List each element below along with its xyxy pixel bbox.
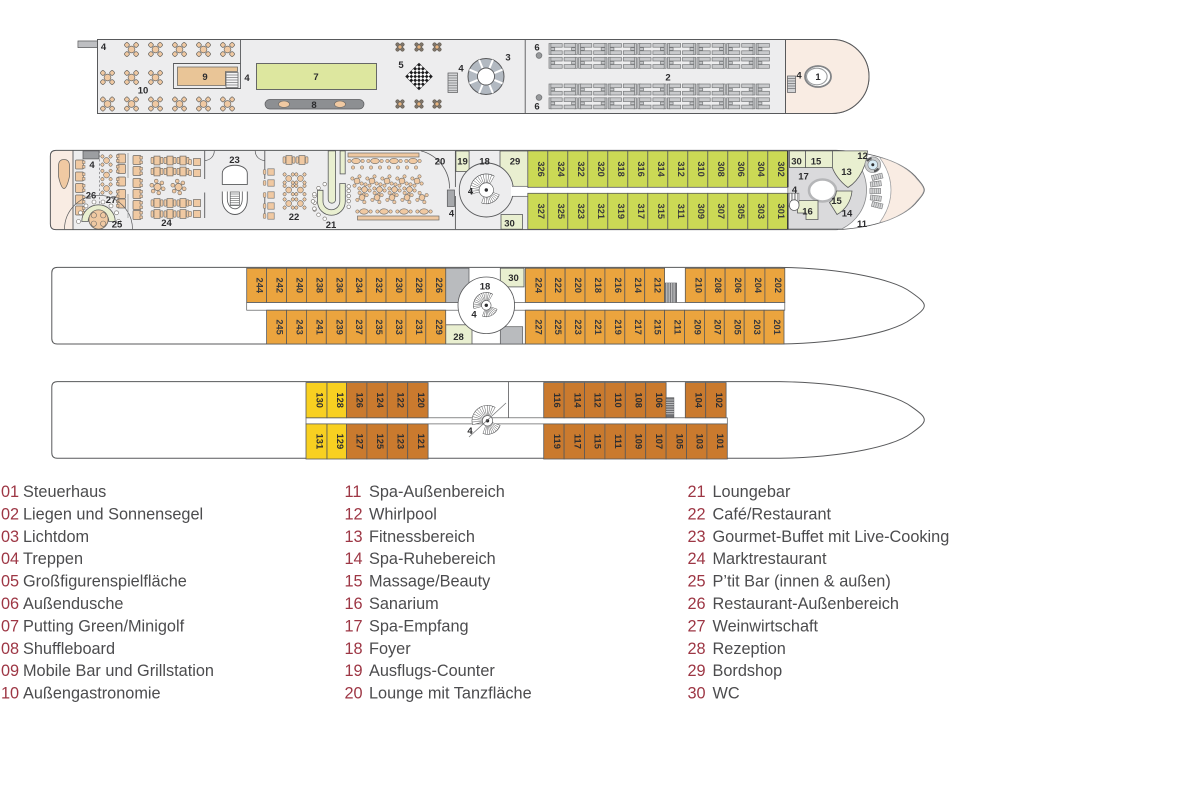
svg-text:4: 4 <box>467 426 473 437</box>
svg-text:125: 125 <box>375 434 385 450</box>
svg-text:29: 29 <box>688 662 706 680</box>
svg-text:320: 320 <box>596 161 606 177</box>
svg-text:206: 206 <box>733 278 743 294</box>
svg-text:217: 217 <box>633 319 643 335</box>
svg-text:30: 30 <box>508 273 519 284</box>
svg-text:218: 218 <box>593 278 603 294</box>
svg-text:326: 326 <box>536 161 546 177</box>
svg-text:301: 301 <box>776 204 786 220</box>
svg-text:Sanarium: Sanarium <box>369 595 439 613</box>
svg-text:07: 07 <box>1 617 19 635</box>
svg-text:Loungebar: Loungebar <box>713 483 791 501</box>
svg-text:21: 21 <box>688 483 706 501</box>
svg-text:214: 214 <box>633 278 643 294</box>
svg-text:2: 2 <box>665 73 670 84</box>
svg-text:01: 01 <box>1 483 19 501</box>
svg-text:4: 4 <box>89 160 95 171</box>
svg-text:12: 12 <box>345 505 363 523</box>
svg-text:204: 204 <box>753 278 763 294</box>
svg-text:239: 239 <box>334 319 344 335</box>
svg-text:23: 23 <box>229 155 240 166</box>
svg-text:06: 06 <box>1 595 19 613</box>
svg-text:238: 238 <box>314 278 324 294</box>
svg-text:Gourmet-Buffet mit Live-Cookin: Gourmet-Buffet mit Live-Cooking <box>713 528 950 546</box>
svg-text:103: 103 <box>695 434 705 450</box>
svg-text:321: 321 <box>596 204 606 220</box>
svg-text:211: 211 <box>673 320 683 335</box>
svg-text:5: 5 <box>398 60 404 71</box>
svg-text:119: 119 <box>552 434 562 449</box>
svg-text:19: 19 <box>345 662 363 680</box>
svg-text:12: 12 <box>857 151 868 162</box>
svg-text:Spa-Außenbereich: Spa-Außenbereich <box>369 483 505 501</box>
svg-text:29: 29 <box>510 157 521 168</box>
svg-text:Rezeption: Rezeption <box>713 640 786 658</box>
svg-text:225: 225 <box>553 319 563 335</box>
svg-text:208: 208 <box>713 278 723 294</box>
svg-text:108: 108 <box>634 392 644 408</box>
svg-text:Bordshop: Bordshop <box>713 662 783 680</box>
svg-text:226: 226 <box>434 278 444 294</box>
svg-text:232: 232 <box>374 278 384 294</box>
svg-text:244: 244 <box>255 278 265 294</box>
svg-text:25: 25 <box>688 573 706 591</box>
svg-text:324: 324 <box>556 161 566 177</box>
svg-text:308: 308 <box>716 161 726 177</box>
svg-text:304: 304 <box>756 161 766 177</box>
svg-text:16: 16 <box>345 595 363 613</box>
svg-text:314: 314 <box>656 161 666 177</box>
svg-text:307: 307 <box>716 204 726 220</box>
svg-text:230: 230 <box>394 278 404 294</box>
svg-text:30: 30 <box>504 219 515 230</box>
svg-text:Spa-Ruhebereich: Spa-Ruhebereich <box>369 550 496 568</box>
svg-text:130: 130 <box>315 392 325 408</box>
svg-text:4: 4 <box>101 42 107 53</box>
svg-text:126: 126 <box>355 392 365 408</box>
svg-text:115: 115 <box>593 434 603 449</box>
svg-text:229: 229 <box>434 319 444 335</box>
svg-text:WC: WC <box>713 685 740 703</box>
svg-text:4: 4 <box>471 310 477 321</box>
svg-text:128: 128 <box>335 392 345 408</box>
svg-text:224: 224 <box>533 278 543 294</box>
svg-text:10: 10 <box>1 685 19 703</box>
svg-text:228: 228 <box>414 278 424 294</box>
svg-text:227: 227 <box>533 319 543 335</box>
svg-text:10: 10 <box>138 86 149 97</box>
svg-text:124: 124 <box>375 392 385 408</box>
svg-text:309: 309 <box>696 204 706 220</box>
svg-text:22: 22 <box>289 212 300 223</box>
svg-text:319: 319 <box>616 204 626 220</box>
svg-text:302: 302 <box>776 161 786 177</box>
svg-text:02: 02 <box>1 505 19 523</box>
svg-text:Restaurant-Außenbereich: Restaurant-Außenbereich <box>713 595 899 613</box>
svg-text:234: 234 <box>354 278 364 294</box>
svg-text:203: 203 <box>752 319 762 335</box>
svg-text:325: 325 <box>556 204 566 220</box>
svg-text:318: 318 <box>616 161 626 177</box>
svg-text:1: 1 <box>815 72 821 83</box>
svg-text:Café/Restaurant: Café/Restaurant <box>713 505 832 523</box>
svg-text:233: 233 <box>394 319 404 335</box>
svg-text:Außengastronomie: Außengastronomie <box>23 685 161 703</box>
svg-text:Fitnessbereich: Fitnessbereich <box>369 528 475 546</box>
svg-text:18: 18 <box>345 640 363 658</box>
svg-text:9: 9 <box>202 72 207 83</box>
svg-text:212: 212 <box>653 278 663 294</box>
svg-text:236: 236 <box>334 278 344 294</box>
svg-text:30: 30 <box>688 685 706 703</box>
svg-text:Liegen und Sonnensegel: Liegen und Sonnensegel <box>23 505 203 523</box>
svg-text:7: 7 <box>313 72 318 83</box>
svg-text:Treppen: Treppen <box>23 550 83 568</box>
svg-text:Ausflugs-Counter: Ausflugs-Counter <box>369 662 495 680</box>
svg-text:4: 4 <box>792 185 798 196</box>
svg-text:4: 4 <box>796 71 802 82</box>
svg-text:207: 207 <box>712 319 722 335</box>
svg-text:24: 24 <box>161 218 172 229</box>
svg-text:4: 4 <box>468 187 474 198</box>
svg-text:Putting Green/Minigolf: Putting Green/Minigolf <box>23 617 185 635</box>
svg-text:114: 114 <box>572 393 582 409</box>
svg-text:107: 107 <box>654 434 664 450</box>
svg-text:311: 311 <box>676 204 686 219</box>
svg-text:26: 26 <box>688 595 706 613</box>
svg-text:6: 6 <box>534 43 539 54</box>
svg-text:Lichtdom: Lichtdom <box>23 528 89 546</box>
svg-text:09: 09 <box>1 662 19 680</box>
svg-text:242: 242 <box>275 278 285 294</box>
svg-text:18: 18 <box>480 282 491 293</box>
svg-text:28: 28 <box>688 640 706 658</box>
svg-text:11: 11 <box>345 483 362 501</box>
svg-text:P’tit Bar (innen & außen): P’tit Bar (innen & außen) <box>713 573 891 591</box>
svg-text:110: 110 <box>613 393 623 408</box>
svg-text:109: 109 <box>634 434 644 450</box>
svg-text:04: 04 <box>1 550 19 568</box>
svg-text:13: 13 <box>345 528 363 546</box>
svg-text:17: 17 <box>798 172 809 183</box>
svg-text:102: 102 <box>714 392 724 408</box>
svg-text:116: 116 <box>552 393 562 408</box>
svg-text:231: 231 <box>414 319 424 335</box>
svg-text:Foyer: Foyer <box>369 640 411 658</box>
svg-text:112: 112 <box>593 393 603 408</box>
svg-text:327: 327 <box>536 204 546 220</box>
svg-text:Spa-Empfang: Spa-Empfang <box>369 617 469 635</box>
svg-text:106: 106 <box>654 392 664 408</box>
svg-text:235: 235 <box>374 319 384 335</box>
svg-text:Lounge mit Tanzfläche: Lounge mit Tanzfläche <box>369 685 532 703</box>
svg-text:8: 8 <box>311 100 316 111</box>
svg-text:317: 317 <box>636 204 646 220</box>
svg-text:14: 14 <box>842 209 853 220</box>
svg-text:120: 120 <box>416 392 426 408</box>
svg-text:3: 3 <box>505 53 510 64</box>
svg-text:127: 127 <box>355 434 365 450</box>
svg-text:05: 05 <box>1 573 19 591</box>
svg-text:310: 310 <box>696 161 706 177</box>
svg-text:19: 19 <box>457 157 468 168</box>
svg-text:11: 11 <box>857 219 868 230</box>
svg-text:16: 16 <box>802 207 813 218</box>
svg-text:129: 129 <box>335 434 345 450</box>
svg-text:14: 14 <box>345 550 363 568</box>
svg-text:202: 202 <box>773 278 783 294</box>
svg-text:219: 219 <box>613 319 623 335</box>
svg-text:312: 312 <box>676 161 686 177</box>
svg-text:30: 30 <box>791 157 802 168</box>
svg-text:117: 117 <box>572 434 582 449</box>
svg-text:4: 4 <box>244 73 250 84</box>
svg-text:4: 4 <box>449 209 455 220</box>
svg-text:306: 306 <box>736 161 746 177</box>
svg-text:6: 6 <box>534 102 539 113</box>
svg-text:15: 15 <box>345 573 363 591</box>
svg-text:240: 240 <box>294 278 304 294</box>
svg-text:111: 111 <box>613 434 623 449</box>
svg-text:122: 122 <box>396 392 406 408</box>
svg-text:322: 322 <box>576 161 586 177</box>
svg-text:20: 20 <box>345 685 363 703</box>
svg-text:Großfigurenspielfläche: Großfigurenspielfläche <box>23 573 187 591</box>
svg-text:08: 08 <box>1 640 19 658</box>
svg-text:209: 209 <box>692 319 702 335</box>
svg-text:237: 237 <box>354 319 364 335</box>
svg-text:315: 315 <box>656 204 666 220</box>
svg-text:223: 223 <box>573 319 583 335</box>
svg-text:24: 24 <box>688 550 706 568</box>
svg-text:03: 03 <box>1 528 19 546</box>
svg-text:101: 101 <box>715 434 725 450</box>
svg-text:15: 15 <box>831 196 842 207</box>
svg-text:241: 241 <box>314 319 324 335</box>
svg-text:20: 20 <box>435 157 446 168</box>
svg-text:Shuffleboard: Shuffleboard <box>23 640 115 658</box>
svg-text:25: 25 <box>112 220 123 231</box>
svg-text:123: 123 <box>396 434 406 450</box>
svg-text:28: 28 <box>453 332 464 343</box>
svg-text:221: 221 <box>593 319 603 335</box>
svg-text:201: 201 <box>772 319 782 335</box>
svg-text:13: 13 <box>841 167 852 178</box>
svg-text:220: 220 <box>573 278 583 294</box>
svg-text:Whirlpool: Whirlpool <box>369 505 437 523</box>
svg-text:15: 15 <box>811 157 822 168</box>
svg-text:Mobile Bar und Grillstation: Mobile Bar und Grillstation <box>23 662 214 680</box>
svg-text:22: 22 <box>688 505 706 523</box>
svg-text:303: 303 <box>756 204 766 220</box>
svg-text:104: 104 <box>694 392 704 408</box>
svg-text:21: 21 <box>326 220 337 231</box>
svg-text:Außendusche: Außendusche <box>23 595 123 613</box>
svg-text:Marktrestaurant: Marktrestaurant <box>713 550 827 568</box>
svg-text:323: 323 <box>576 204 586 220</box>
svg-text:131: 131 <box>315 434 325 450</box>
svg-text:4: 4 <box>458 64 464 75</box>
svg-text:216: 216 <box>613 278 623 294</box>
svg-text:243: 243 <box>294 319 304 335</box>
svg-text:305: 305 <box>736 204 746 220</box>
svg-text:Steuerhaus: Steuerhaus <box>23 483 106 501</box>
svg-text:23: 23 <box>688 528 706 546</box>
svg-text:18: 18 <box>479 157 490 168</box>
svg-text:222: 222 <box>553 278 563 294</box>
svg-text:105: 105 <box>674 434 684 450</box>
svg-text:245: 245 <box>275 319 285 335</box>
svg-text:Massage/Beauty: Massage/Beauty <box>369 573 491 591</box>
svg-text:27: 27 <box>688 617 706 635</box>
svg-text:121: 121 <box>416 434 426 450</box>
svg-text:210: 210 <box>693 278 703 294</box>
svg-text:17: 17 <box>345 617 363 635</box>
svg-text:215: 215 <box>653 319 663 335</box>
svg-text:205: 205 <box>732 319 742 335</box>
svg-text:316: 316 <box>636 161 646 177</box>
svg-text:Weinwirtschaft: Weinwirtschaft <box>713 617 819 635</box>
